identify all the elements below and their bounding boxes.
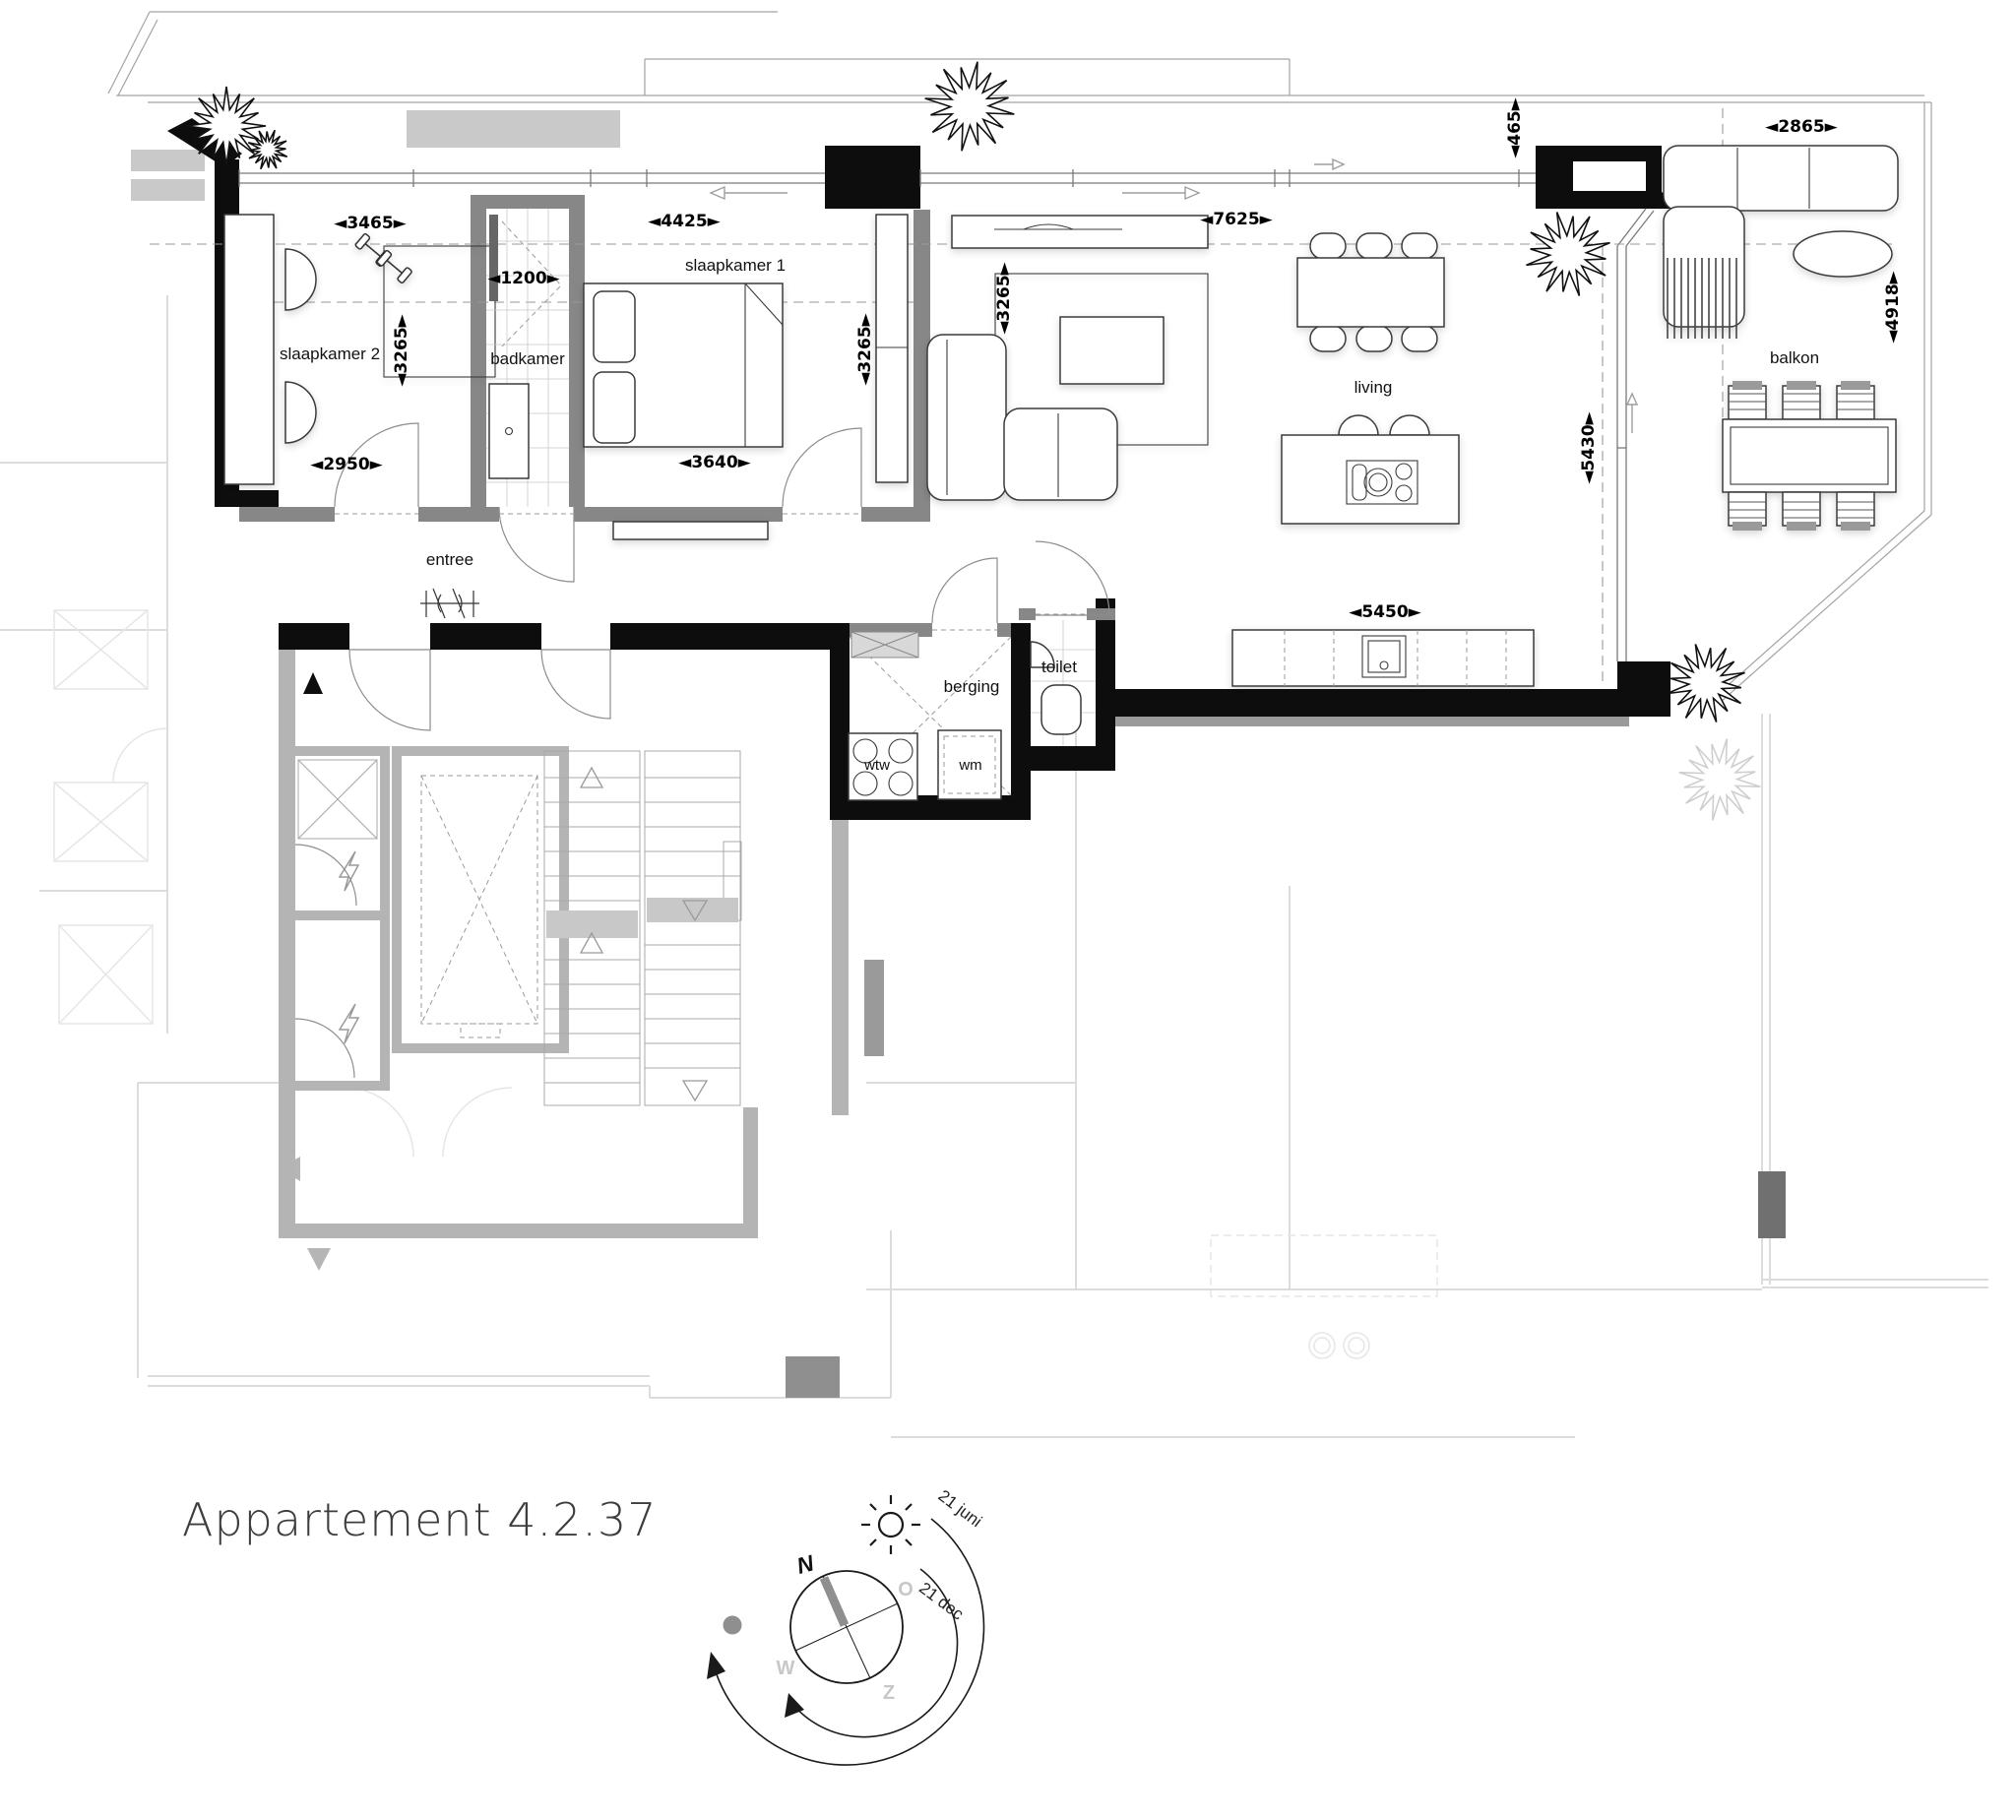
room-label-badkamer: badkamer [490,349,565,368]
dimension-465: ◄465► [1505,96,1525,158]
dimension-3265-bedroom2: ◄3265► [392,313,411,386]
dimension-7625: ◄7625► [1200,210,1273,229]
plan-title: Appartement 4.2.37 [182,1493,658,1546]
core-entrance-arrow-icon [303,672,323,694]
room-label-slaapkamer2: slaapkamer 2 [280,345,380,363]
building-core [279,630,849,1238]
entree-details [420,589,479,618]
dimension-3265-bedroom1: ◄3265► [855,312,875,385]
tree-icon [187,87,266,165]
room-label-berging: berging [944,677,1000,696]
dimension-2950: ◄2950► [310,455,383,474]
floorplan-page: slaapkamer 2 badkamer slaapkamer 1 entre… [0,0,2016,1820]
appliance-label-wtw: wtw [863,757,890,774]
tree-icon [917,54,1023,159]
room-label-balkon: balkon [1770,348,1819,367]
tree-icon [1663,722,1778,838]
compass-dot [724,1616,742,1635]
dimension-3465: ◄3465► [334,214,407,233]
living-furniture [927,216,1534,686]
dimension-3640: ◄3640► [678,453,751,472]
dimension-3265-living: ◄3265► [994,261,1014,334]
compass-rose: N O W Z 21 juni 21 dec [707,1486,985,1765]
floorplan-drawing: slaapkamer 2 badkamer slaapkamer 1 entre… [0,0,2016,1820]
tree-icon [1515,201,1621,307]
room-label-toilet: toilet [1041,658,1077,676]
compass-label-south: Z [883,1682,895,1704]
sun-path-label-summer: 21 juni [935,1486,985,1531]
room-label-slaapkamer1: slaapkamer 1 [685,256,786,275]
outer-boundary [108,12,1931,703]
dimension-2865: ◄2865► [1765,117,1838,137]
dimension-4425: ◄4425► [648,212,721,231]
compass-label-west: W [777,1658,795,1679]
sun-path-label-winter: 21 dec [915,1579,968,1624]
dimension-5430: ◄5430► [1579,410,1599,483]
compass-needle [824,1578,845,1625]
compass-label-east: O [898,1579,913,1600]
balcony-furniture [1664,146,1898,531]
compass-label-north: N [794,1549,817,1579]
dimension-1200: ◄1200► [487,269,560,288]
sun-icon [861,1495,920,1554]
appliance-label-wm: wm [958,757,981,774]
dimension-5450: ◄5450► [1349,602,1421,622]
dimension-4918: ◄4918► [1883,270,1903,343]
room-label-entree: entree [426,550,473,569]
room-label-living: living [1354,378,1393,397]
